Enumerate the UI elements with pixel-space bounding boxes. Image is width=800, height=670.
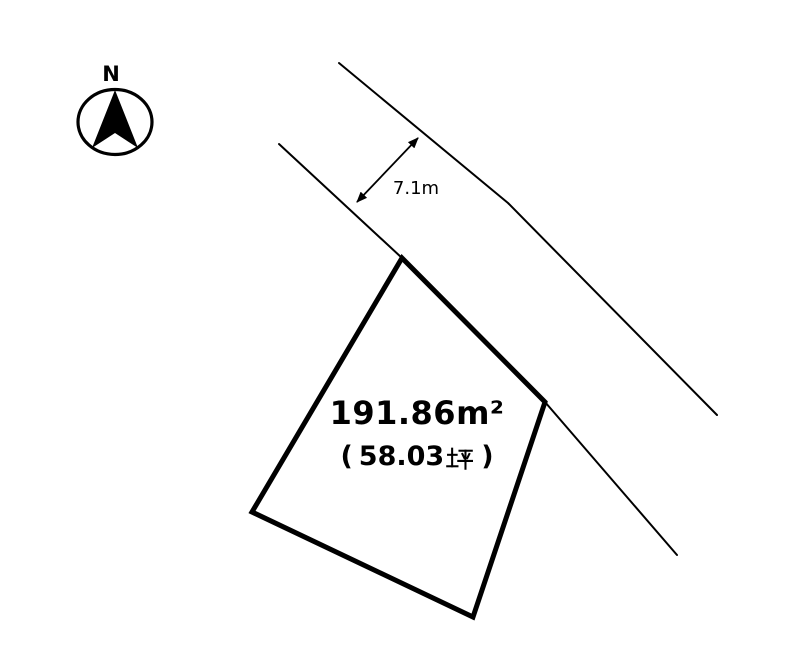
tsubo-open-paren: ( [334, 437, 358, 477]
north-arrow-icon [74, 86, 156, 158]
road-width-label: 7.1m [371, 179, 461, 199]
tsubo-value: 58.03 [359, 437, 444, 477]
parcel-area-tsubo: ( 58.03 ) [277, 437, 557, 477]
compass: N [74, 64, 156, 158]
parcel-area-label: 191.86m² ( 58.03 ) [277, 392, 557, 477]
compass-north-label: N [102, 64, 120, 85]
parcel-area-sqm: 191.86m² [277, 392, 557, 434]
tsubo-character [446, 445, 473, 472]
site-plan: N 7.1m 191.86m² ( 58.03 ) [0, 0, 800, 670]
tsubo-close-paren: ) [475, 437, 499, 477]
